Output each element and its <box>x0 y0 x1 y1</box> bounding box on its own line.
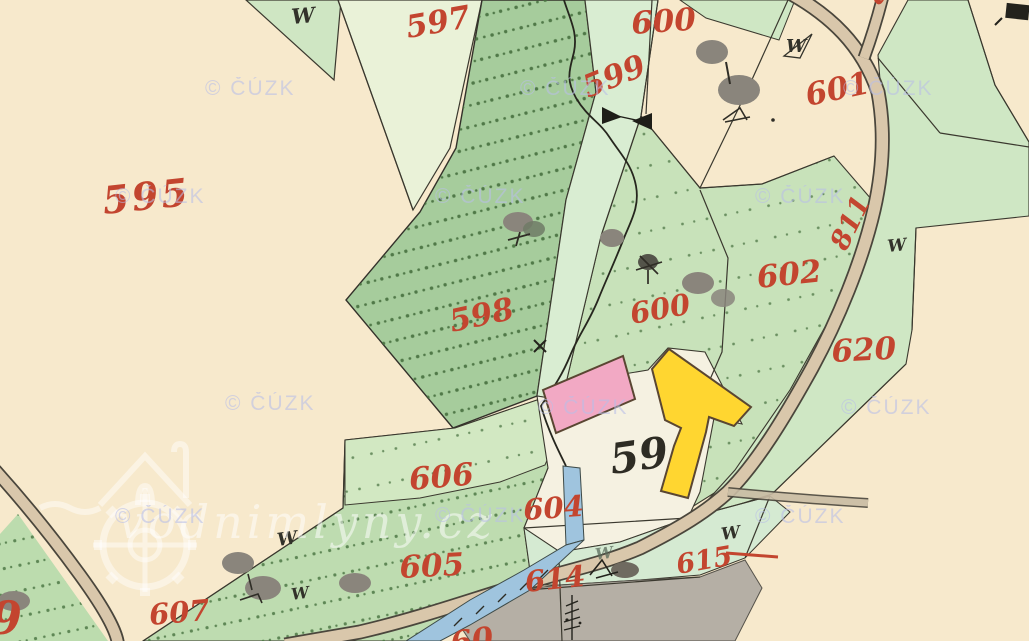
watermark-cuzk: © ČÚZK <box>435 504 525 527</box>
watermark-cuzk: © ČÚZK <box>755 505 845 528</box>
parcel-label-600: 600 <box>630 2 697 42</box>
watermark-cuzk: © ČÚZK <box>841 396 931 419</box>
parcel-label-partial-left: 9 <box>0 591 22 641</box>
parcel-label-607: 607 <box>148 593 211 632</box>
watermark-cuzk: © ČÚZK <box>115 185 205 208</box>
parcel-label-606: 606 <box>408 456 476 498</box>
parcel-label-614: 614 <box>523 559 587 599</box>
watermark-cuzk: © ČÚZK <box>435 185 525 208</box>
watermark-cuzk: © ČÚZK <box>538 396 628 419</box>
house-number-59: 59 <box>607 427 672 484</box>
watermark-cuzk: © ČÚZK <box>843 77 933 100</box>
watermark-cuzk: © ČÚZK <box>520 77 610 100</box>
parcel-label-604: 604 <box>522 489 585 527</box>
watermark-cuzk: © ČÚZK <box>205 77 295 100</box>
watermark-cuzk: © ČÚZK <box>755 185 845 208</box>
watermark-cuzk: © ČÚZK <box>225 392 315 415</box>
map-viewport[interactable]: W W W W W W W 595 597 599 600 601 811 59… <box>0 0 1029 641</box>
watermark-cuzk: © ČÚZK <box>115 505 205 528</box>
parcel-label-602: 602 <box>755 253 823 296</box>
parcel-label-605: 605 <box>399 547 466 586</box>
parcel-label-620: 620 <box>831 331 898 370</box>
cadastral-map-canvas[interactable]: W W W W W W W 595 597 599 600 601 811 59… <box>0 0 1029 641</box>
